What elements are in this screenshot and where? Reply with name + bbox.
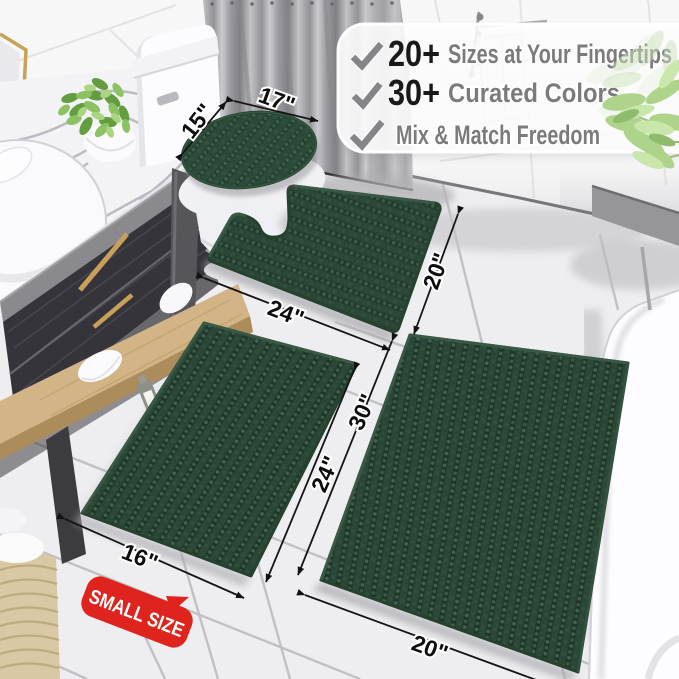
svg-text:Curated Colors: Curated Colors [448, 78, 620, 108]
svg-text:Mix & Match Freedom: Mix & Match Freedom [396, 120, 600, 150]
svg-text:30+: 30+ [388, 72, 440, 113]
svg-text:20+: 20+ [388, 33, 440, 74]
